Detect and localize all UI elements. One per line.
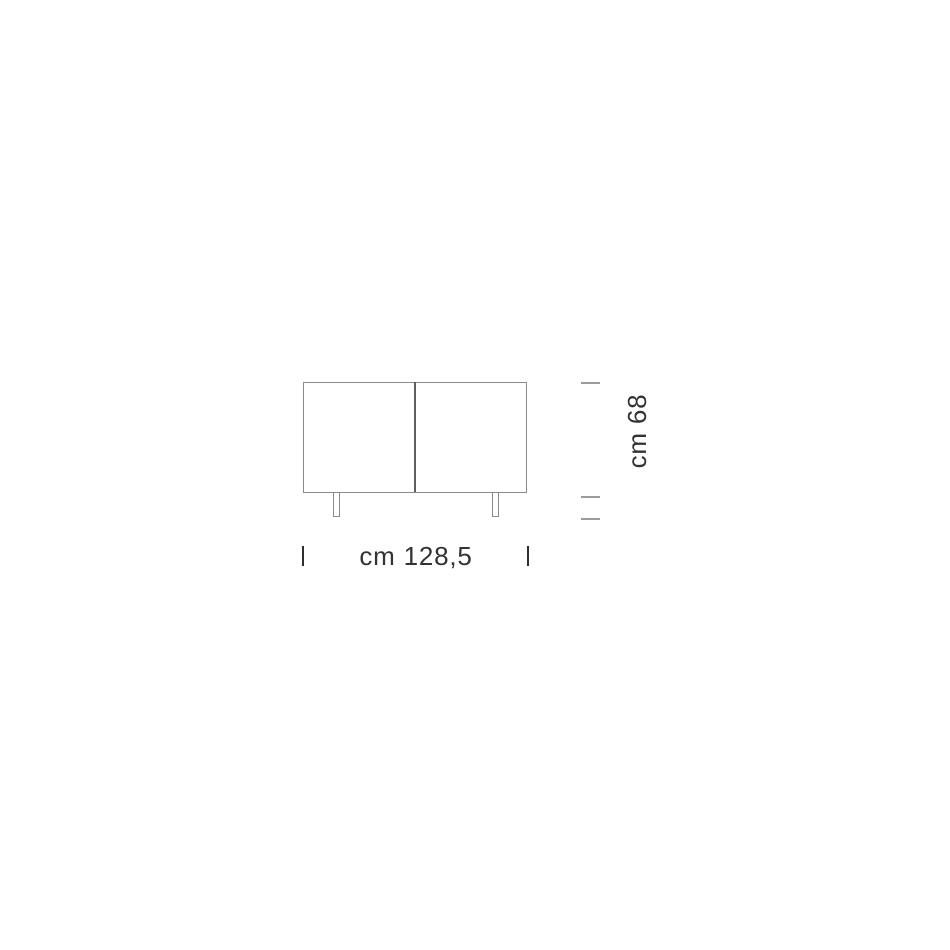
height-tick-top xyxy=(581,382,600,384)
cabinet-leg-right xyxy=(492,493,499,517)
cabinet-door-divider xyxy=(414,382,416,492)
height-dimension-label: cm 68 xyxy=(624,394,650,469)
width-tick-left xyxy=(302,546,304,566)
cabinet-outline xyxy=(303,382,527,493)
height-tick-leg-bottom xyxy=(581,518,600,520)
dimension-diagram: cm 68 cm 128,5 xyxy=(0,0,950,950)
height-tick-body-bottom xyxy=(581,496,600,498)
width-dimension-label: cm 128,5 xyxy=(359,543,472,569)
cabinet-leg-left xyxy=(333,493,340,517)
width-tick-right xyxy=(527,546,529,566)
